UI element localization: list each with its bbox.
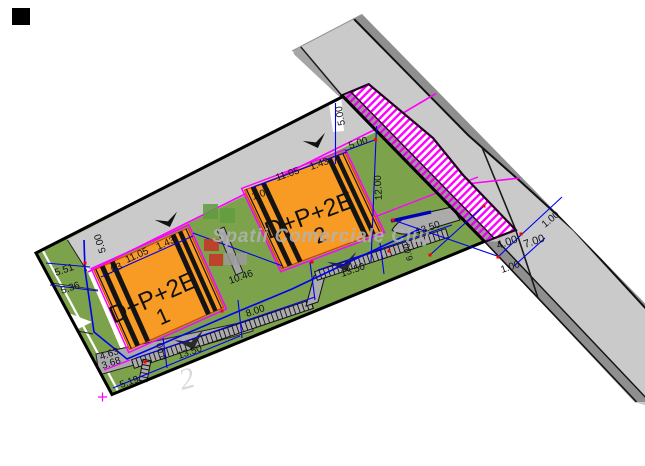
- svg-text:12.00: 12.00: [373, 174, 385, 200]
- svg-text:Spatii Comerciale Cluj: Spatii Comerciale Cluj: [212, 226, 430, 247]
